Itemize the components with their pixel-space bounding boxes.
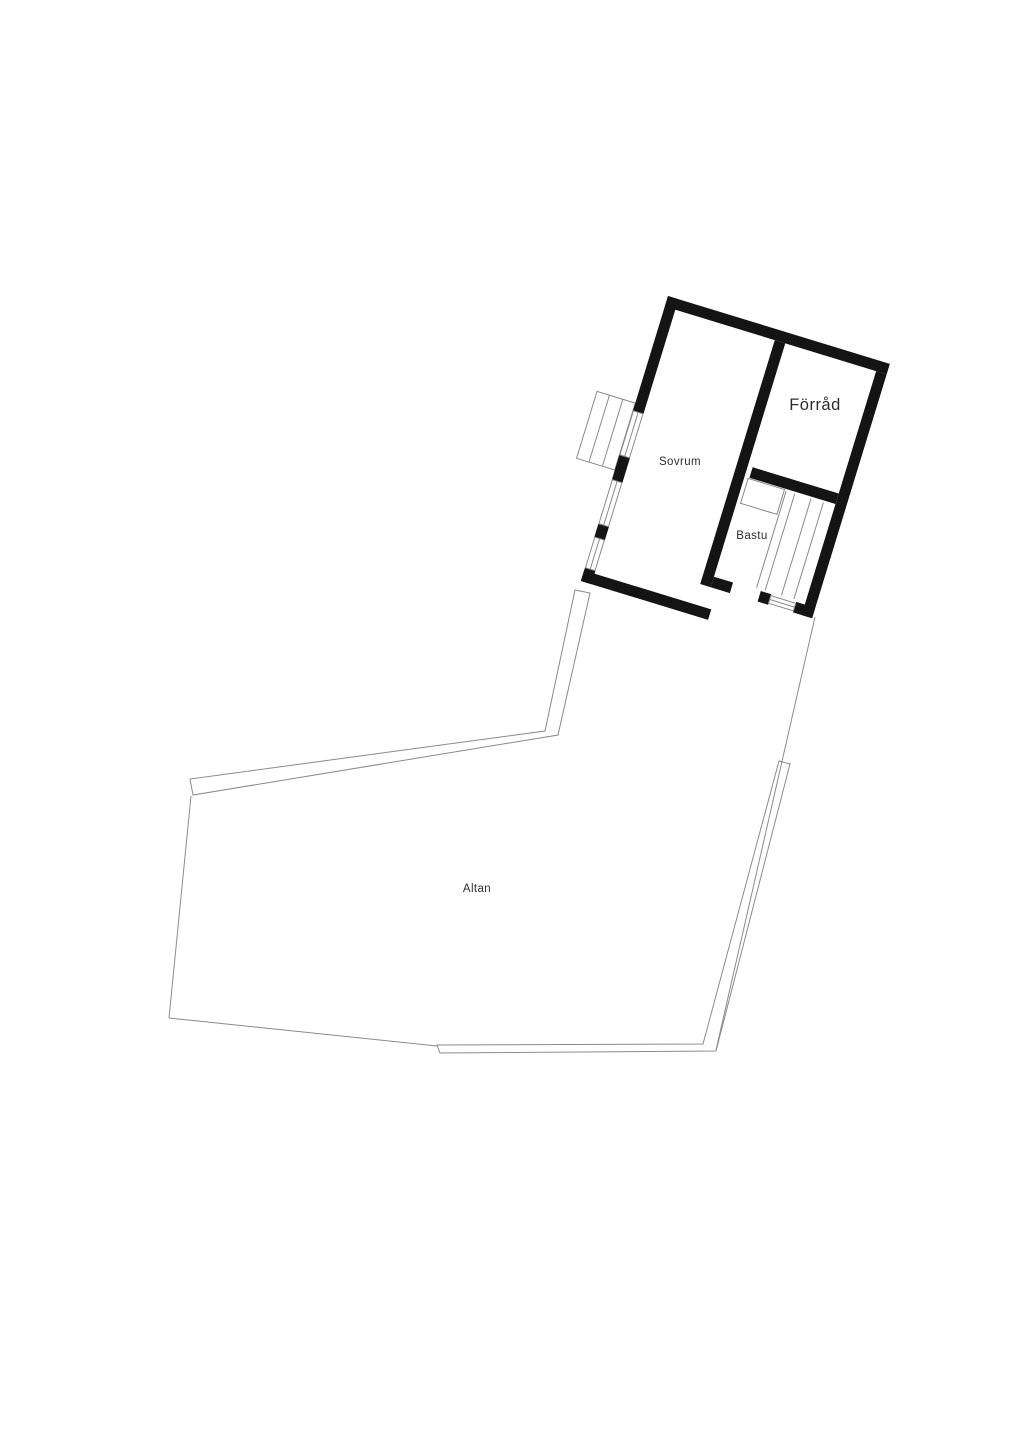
sauna-bench-line	[781, 499, 811, 596]
bastu-window	[769, 596, 796, 611]
deck-railing-northwest	[190, 590, 590, 795]
bastu-label: Bastu	[736, 530, 767, 542]
forrad-label: Förråd	[789, 396, 841, 414]
sovrum-divider-wall	[700, 340, 785, 587]
deck-edge-south	[169, 1018, 437, 1046]
building	[543, 284, 890, 649]
sovrum-label: Sovrum	[659, 456, 701, 468]
deck-altan	[169, 590, 815, 1053]
floorplan-page: Sovrum Förråd Bastu Altan	[0, 0, 1024, 1448]
floorplan-canvas: Sovrum Förråd Bastu Altan	[0, 0, 1024, 1448]
deck-railing-southeast	[437, 761, 790, 1053]
sovrum-bottom-wall	[581, 570, 711, 619]
room-labels: Sovrum Förråd Bastu Altan	[463, 396, 841, 895]
altan-label: Altan	[463, 883, 491, 895]
left-wall-segment	[633, 296, 679, 414]
deck-edge-east	[716, 617, 815, 1050]
deck-edge-west	[169, 796, 191, 1018]
divider-wall-stub	[711, 577, 733, 593]
